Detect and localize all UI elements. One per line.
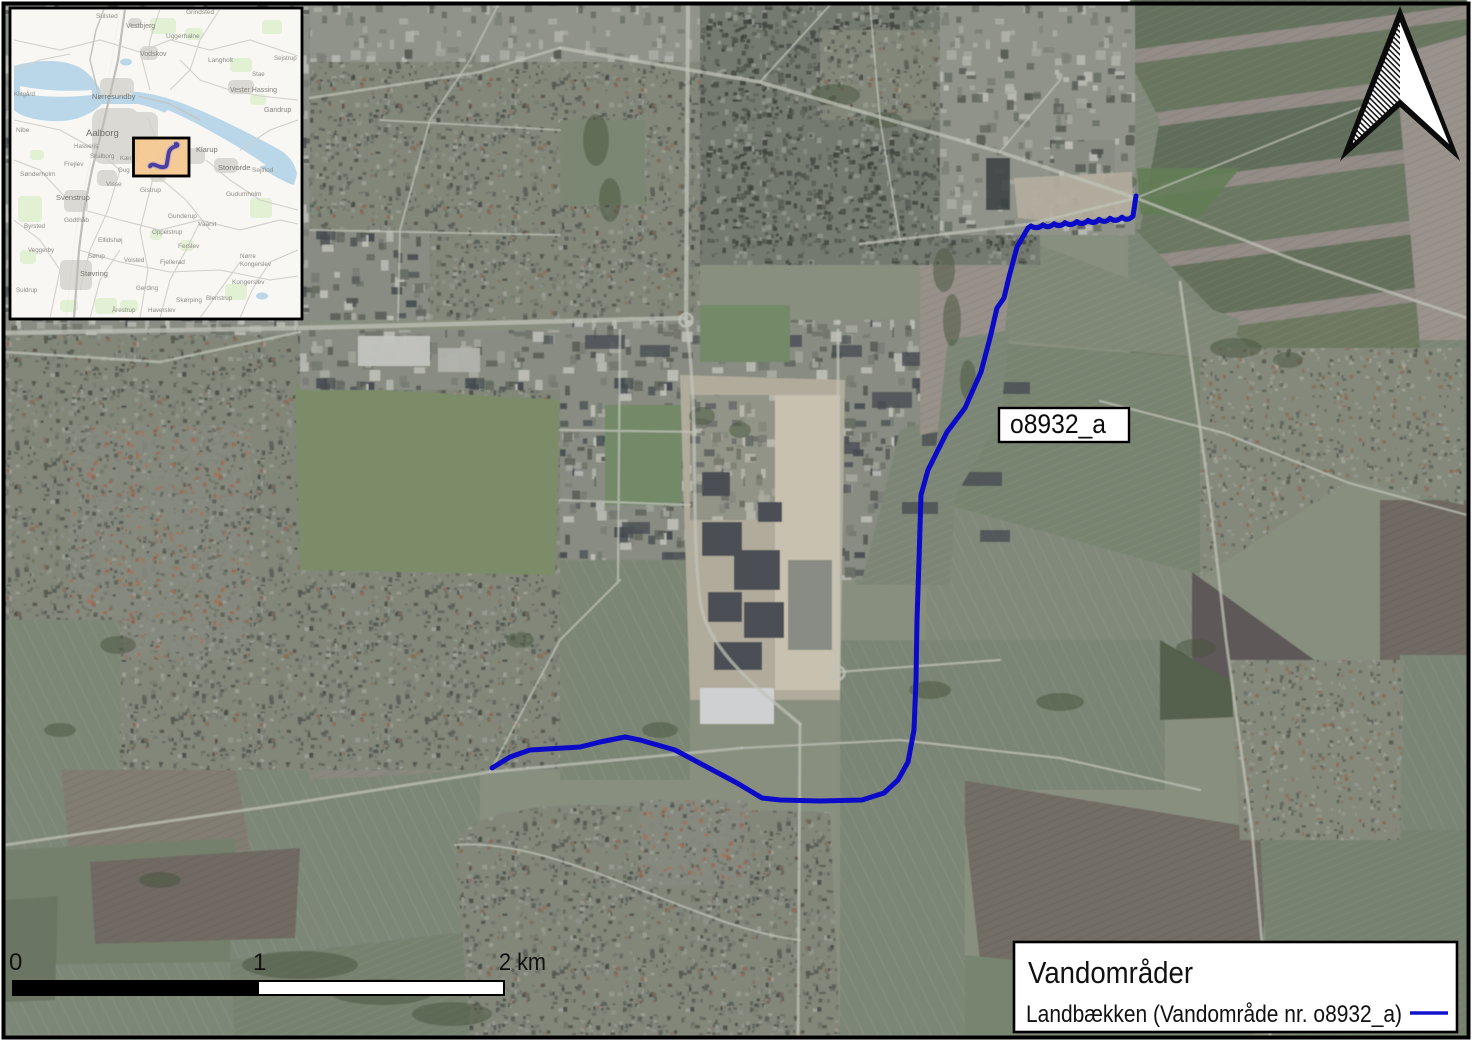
svg-text:Sejstrup: Sejstrup: [274, 55, 297, 62]
svg-text:Vaarst: Vaarst: [198, 221, 216, 228]
svg-text:Sulsted: Sulsted: [96, 13, 118, 20]
svg-text:Gistrup: Gistrup: [140, 187, 161, 194]
svg-text:Sønderholm: Sønderholm: [20, 171, 55, 178]
svg-text:Aalborg: Aalborg: [86, 128, 119, 139]
svg-text:Langholt: Langholt: [208, 57, 233, 64]
svg-text:Vodskov: Vodskov: [140, 51, 167, 58]
svg-text:Årestrup: Årestrup: [112, 307, 136, 314]
svg-text:Klitgård: Klitgård: [14, 91, 36, 98]
svg-text:0: 0: [9, 949, 22, 976]
svg-text:Vester Hassing: Vester Hassing: [230, 87, 277, 94]
svg-text:Støvring: Støvring: [80, 269, 108, 278]
svg-text:Gandrup: Gandrup: [264, 107, 291, 114]
svg-text:Nørresundby: Nørresundby: [92, 92, 136, 101]
svg-text:Grindsted: Grindsted: [186, 9, 215, 16]
svg-text:Fjellerad: Fjellerad: [160, 259, 185, 266]
svg-text:Landbækken (Vandområde nr. o89: Landbækken (Vandområde nr. o8932_a): [1026, 1001, 1402, 1028]
svg-text:Vestbjerg: Vestbjerg: [126, 23, 155, 30]
svg-text:2 km: 2 km: [499, 949, 546, 976]
svg-text:Gunderup: Gunderup: [168, 213, 197, 220]
svg-text:Klarup: Klarup: [196, 145, 218, 154]
svg-text:Svenstrup: Svenstrup: [56, 193, 90, 202]
svg-text:Uggerhalne: Uggerhalne: [166, 33, 200, 40]
svg-text:o8932_a: o8932_a: [1010, 409, 1107, 439]
svg-text:Ferslev: Ferslev: [178, 243, 200, 250]
svg-text:Sejlflod: Sejlflod: [252, 167, 274, 174]
svg-text:Nibe: Nibe: [16, 127, 30, 134]
svg-text:Gudumholm: Gudumholm: [226, 191, 261, 198]
svg-text:Blenstrup: Blenstrup: [206, 295, 233, 302]
svg-text:Godthåb: Godthåb: [64, 216, 89, 224]
svg-text:Visse: Visse: [106, 181, 122, 188]
svg-text:Kongerslev: Kongerslev: [240, 261, 272, 268]
svg-text:Skalborg: Skalborg: [90, 153, 115, 160]
svg-text:Hasseris: Hasseris: [74, 143, 98, 150]
svg-text:Veggerby: Veggerby: [28, 247, 55, 254]
svg-text:Vandområder: Vandområder: [1028, 955, 1193, 990]
svg-text:Kongerslev: Kongerslev: [232, 279, 265, 286]
svg-text:1: 1: [253, 949, 266, 976]
svg-text:Stae: Stae: [252, 71, 265, 78]
svg-text:Suldrup: Suldrup: [16, 287, 38, 294]
svg-text:Sørup: Sørup: [88, 253, 105, 260]
svg-text:Haverslev: Haverslev: [148, 307, 176, 314]
svg-text:Nørre: Nørre: [240, 253, 256, 260]
svg-text:Frejlev: Frejlev: [64, 161, 84, 168]
svg-text:Oppelstrup: Oppelstrup: [152, 229, 183, 236]
svg-text:Skørping: Skørping: [176, 297, 202, 304]
svg-text:Gug: Gug: [118, 167, 130, 174]
svg-text:Byrsted: Byrsted: [24, 223, 46, 230]
svg-text:Ellidshøj: Ellidshøj: [98, 237, 123, 244]
svg-text:Storvorde: Storvorde: [218, 163, 251, 172]
svg-text:Gerding: Gerding: [136, 285, 159, 292]
svg-text:Volsted: Volsted: [124, 257, 145, 264]
